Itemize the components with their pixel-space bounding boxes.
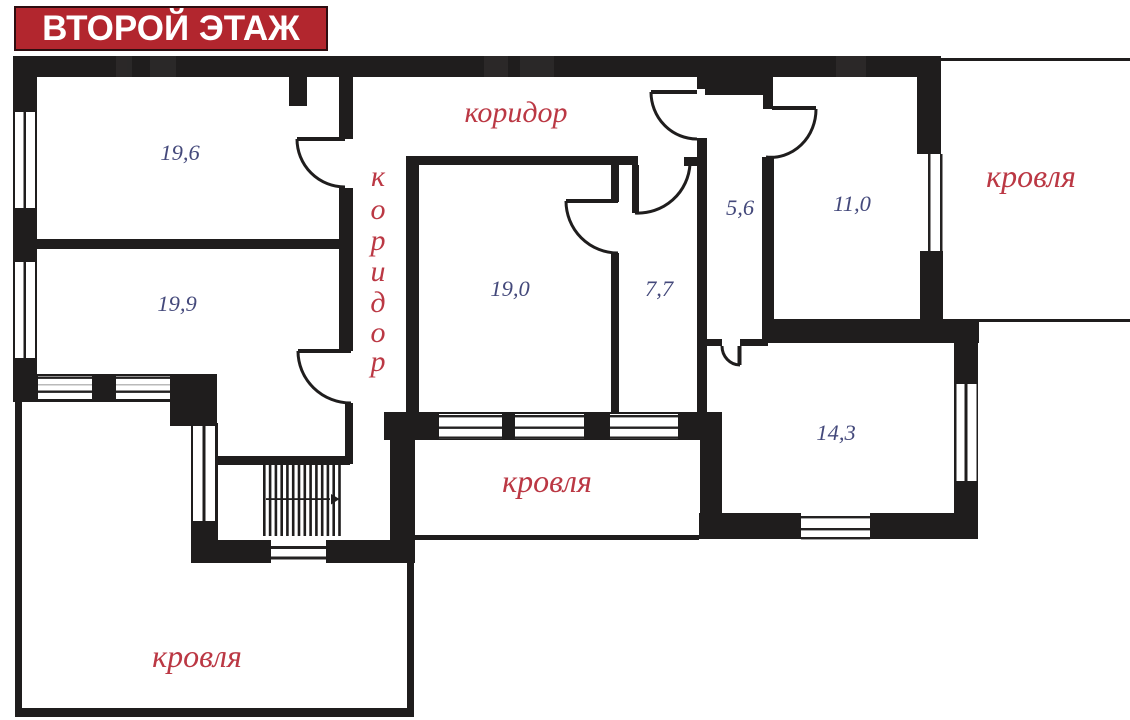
svg-text:5,6: 5,6 xyxy=(726,195,755,220)
svg-text:к: к xyxy=(371,160,386,193)
svg-text:11,0: 11,0 xyxy=(833,191,871,216)
svg-text:19,0: 19,0 xyxy=(490,276,529,301)
svg-text:кровля: кровля xyxy=(152,638,242,674)
svg-text:р: р xyxy=(369,224,386,257)
svg-text:и: и xyxy=(371,255,386,288)
svg-text:кровля: кровля xyxy=(986,158,1076,194)
svg-text:ВТОРОЙ ЭТАЖ: ВТОРОЙ ЭТАЖ xyxy=(42,8,300,48)
svg-text:7,7: 7,7 xyxy=(645,276,675,301)
svg-text:19,9: 19,9 xyxy=(157,291,196,316)
svg-text:р: р xyxy=(369,345,386,378)
svg-text:19,6: 19,6 xyxy=(160,140,200,165)
svg-text:о: о xyxy=(371,193,386,226)
svg-text:14,3: 14,3 xyxy=(816,420,855,445)
svg-text:коридор: коридор xyxy=(464,96,567,129)
svg-text:кровля: кровля xyxy=(502,463,592,499)
svg-text:д: д xyxy=(370,286,385,319)
